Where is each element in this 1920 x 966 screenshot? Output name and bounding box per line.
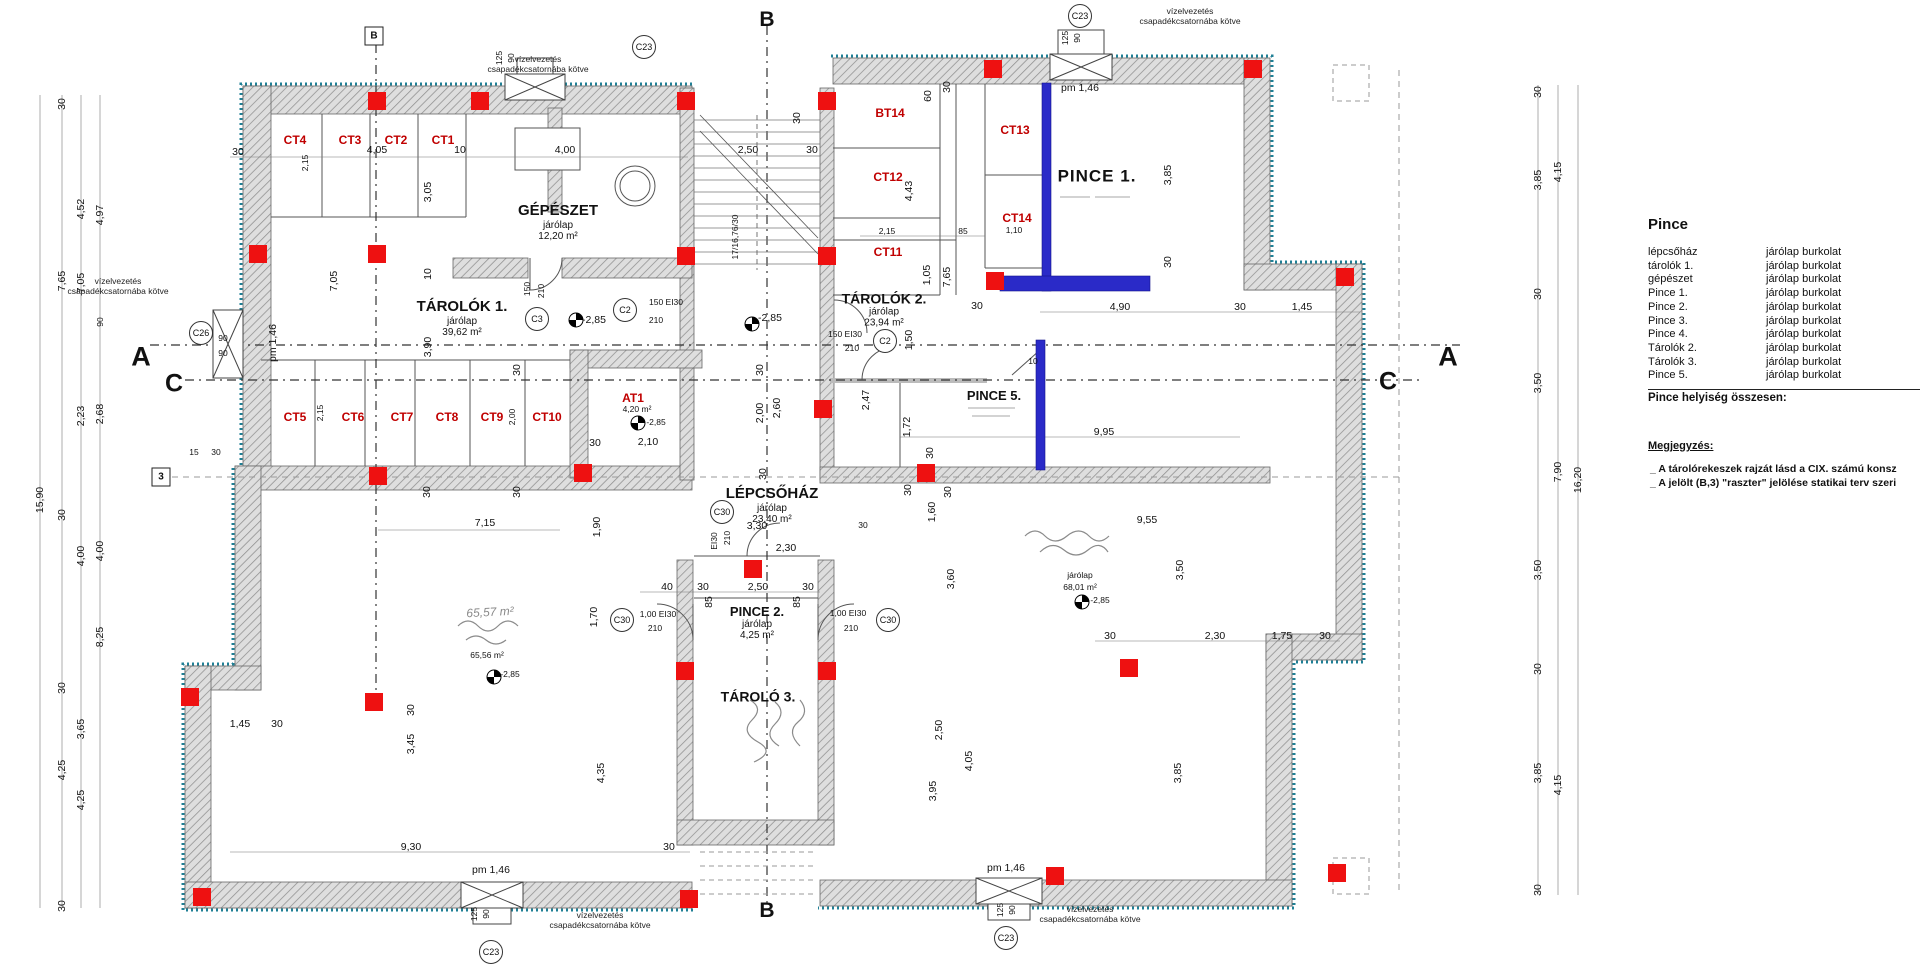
chain-dim-label: 3,85 <box>1533 170 1544 190</box>
dim-label: 10 <box>454 145 466 156</box>
dim-label: 4,90 <box>1110 302 1130 313</box>
legend-room-finish: járólap burkolat <box>1766 273 1841 287</box>
drain-note-line1: vízelvezetés <box>1039 904 1140 914</box>
area-label-right-room: 68,01 m² <box>1063 583 1097 592</box>
cell-label-ct5: CT5 <box>284 410 307 424</box>
room-finish: járólap <box>842 307 927 318</box>
legend-row: Pince 1.járólap burkolat <box>1648 287 1841 301</box>
legend-room-finish: járólap burkolat <box>1766 369 1841 383</box>
dim-label: 1,05 <box>922 265 933 285</box>
room-area: 39,62 m² <box>417 326 508 337</box>
chain-dim-label: 15,90 <box>35 487 46 513</box>
drain-note-bottom-right: vízelvezetés csapadékcsatornába kötve <box>1039 904 1140 924</box>
room-label-lepcsohaz: LÉPCSŐHÁZ járólap 23,40 m² <box>726 486 819 525</box>
legend-room-name: Tárolók 3. <box>1648 356 1766 370</box>
legend-note-1: _ A tárolórekeszek rajzát lásd a CIX. sz… <box>1650 463 1897 475</box>
dim-label: 2,30 <box>1205 631 1225 642</box>
legend-row: Pince 5.járólap burkolat <box>1648 369 1841 383</box>
cell-label-ct13: CT13 <box>1000 123 1029 137</box>
legend-row: Pince 3.járólap burkolat <box>1648 315 1841 329</box>
room-area: 23,40 m² <box>726 513 819 524</box>
section-marker-a-right: A <box>1438 342 1458 373</box>
room-area: 12,20 m² <box>518 230 598 241</box>
dim-label: 1,60 <box>927 502 938 522</box>
cell-label-ct12: CT12 <box>873 170 902 184</box>
door-size-label: 210 <box>648 624 662 633</box>
legend-room-name: gépészet <box>1648 273 1766 287</box>
legend-row: Pince 4.járólap burkolat <box>1648 328 1841 342</box>
legend-room-name: Pince 1. <box>1648 287 1766 301</box>
chain-dim-label: 7,90 <box>1553 462 1564 482</box>
dim-label: 7,15 <box>475 518 495 529</box>
stair-riser-label: 17/16,76/30 <box>731 215 740 260</box>
window-size-label: 90 <box>218 349 227 358</box>
window-size-label: 90 <box>1008 905 1017 914</box>
dim-label: 30 <box>1104 631 1116 642</box>
window-marker-c23-top: C23 <box>1068 4 1092 28</box>
room-label-gepeszet: GÉPÉSZET járólap 12,20 m² <box>518 203 598 242</box>
window-marker-c26: C26 <box>189 321 213 345</box>
door-marker-c2-left: C2 <box>613 298 637 322</box>
dim-label: 9,95 <box>1094 427 1114 438</box>
legend-row: gépészetjárólap burkolat <box>1648 273 1841 287</box>
room-name: LÉPCSŐHÁZ <box>726 486 819 503</box>
dim-label: 2,00 <box>755 403 766 423</box>
dim-label: 3,60 <box>946 569 957 589</box>
room-finish: járólap <box>518 219 598 230</box>
level-label: -2,85 <box>646 418 665 427</box>
dim-label: 30 <box>663 842 675 853</box>
window-marker-c23-top-left: C23 <box>632 35 656 59</box>
legend-room-finish: járólap burkolat <box>1766 328 1841 342</box>
chain-dim-label: 4,25 <box>57 760 68 780</box>
dim-label: 40 <box>661 582 673 593</box>
area-label-at1: 4,20 m² <box>623 405 652 414</box>
chain-dim-label: 2,23 <box>76 406 87 426</box>
room-finish: járólap <box>417 315 508 326</box>
dim-label: 10 <box>1028 357 1037 366</box>
sketch-area-left-room: 65,57 m² <box>466 604 514 620</box>
dim-label: 30 <box>211 448 220 457</box>
dim-label: 30 <box>697 582 709 593</box>
dim-label: 15 <box>189 448 198 457</box>
walls <box>185 58 1362 908</box>
drain-note-line2: csapadékcsatornába kötve <box>487 64 588 74</box>
dim-label: 30 <box>942 81 953 93</box>
highlighted-walls-blue <box>1000 83 1150 470</box>
dim-label: 4,05 <box>964 751 975 771</box>
dim-label: 30 <box>903 484 914 496</box>
dim-label: 3,85 <box>1173 763 1184 783</box>
door-arcs <box>530 258 1040 640</box>
door-size-label: 150 EI30 <box>649 298 683 307</box>
dim-label: 30 <box>792 112 803 124</box>
chain-dim-label: 3,50 <box>1533 560 1544 580</box>
axis-marker-b-box: B <box>365 27 384 46</box>
door-size-label: 210 <box>844 624 858 633</box>
dim-label: 1,45 <box>230 719 250 730</box>
chain-dim-label: 4,25 <box>76 790 87 810</box>
cell-label-ct8: CT8 <box>436 410 459 424</box>
dim-label: 3,90 <box>423 337 434 357</box>
dim-label: 3,45 <box>406 734 417 754</box>
door-size-label: 150 EI30 <box>828 330 862 339</box>
axis-marker-3-box: 3 <box>152 468 171 487</box>
dim-label: 85 <box>704 596 715 608</box>
door-size-label: 210 <box>845 344 859 353</box>
legend-room-finish: járólap burkolat <box>1766 315 1841 329</box>
dim-label: 2,50 <box>738 145 758 156</box>
dim-label: 1,70 <box>589 607 600 627</box>
dim-label: 30 <box>802 582 814 593</box>
chain-dim-label: 4,52 <box>76 199 87 219</box>
chain-dim-label: 90 <box>96 317 105 326</box>
section-marker-b-top: B <box>759 8 774 32</box>
legend-room-name: Pince 2. <box>1648 301 1766 315</box>
drain-note-line1: vízelvezetés <box>549 910 650 920</box>
dim-label: 9,55 <box>1137 515 1157 526</box>
window-size-label: 90 <box>218 334 227 343</box>
legend-room-list: lépcsőházjárólap burkolat tárolók 1.járó… <box>1648 246 1841 383</box>
room-name: TÁROLÓ 3. <box>721 689 796 704</box>
dim-label: 30 <box>422 486 433 498</box>
dim-label: 30 <box>858 521 867 530</box>
chain-dim-label: 30 <box>1533 288 1544 300</box>
door-marker-c3: C3 <box>525 307 549 331</box>
room-area: 4,25 m² <box>730 630 784 641</box>
chain-dim-label: 30 <box>57 682 68 694</box>
legend-row: Pince 2.járólap burkolat <box>1648 301 1841 315</box>
stairs <box>694 115 820 270</box>
room-name: TÁROLÓK 2. <box>842 291 927 306</box>
section-marker-a-left: A <box>131 342 151 373</box>
legend-room-name: Pince 3. <box>1648 315 1766 329</box>
section-marker-c-right: C <box>1379 368 1397 397</box>
level-label: -2,85 <box>758 313 782 324</box>
dim-label: 60 <box>923 90 934 102</box>
dim-label: 30 <box>971 301 983 312</box>
dim-label: 2,50 <box>748 582 768 593</box>
drain-note-left: vízelvezetés csapadékcsatornába kötve <box>67 276 168 296</box>
dim-label: 2,30 <box>776 543 796 554</box>
chain-dim-label: 4,15 <box>1553 162 1564 182</box>
dim-label: 30 <box>1163 256 1174 268</box>
dim-label: 1,72 <box>902 417 913 437</box>
drain-note-line1: vízelvezetés <box>1139 6 1240 16</box>
door-marker-c30-left: C30 <box>610 608 634 632</box>
legend-room-finish: járólap burkolat <box>1766 342 1841 356</box>
chain-dim-label: 8,25 <box>95 627 106 647</box>
cell-label-ct10: CT10 <box>532 410 561 424</box>
door-size-label: 1,00 EI30 <box>830 609 866 618</box>
room-area: 23,94 m² <box>842 318 927 329</box>
dim-label: 7,05 <box>329 271 340 291</box>
window-size-label: 90 <box>1073 33 1082 42</box>
window-size-label: 125 <box>1061 31 1070 45</box>
dim-label: 210 <box>537 284 546 298</box>
legend-row: tárolók 1.járólap burkolat <box>1648 260 1841 274</box>
chain-dim-label: 4,97 <box>95 205 106 225</box>
drain-note-line1: vízelvezetés <box>67 276 168 286</box>
parapet-label: pm 1,46 <box>987 863 1025 874</box>
cell-label-ct6: CT6 <box>342 410 365 424</box>
legend-total-label: Pince helyiség összesen: <box>1648 389 1920 404</box>
section-marker-b-bottom: B <box>759 899 774 923</box>
legend-note-2: _ A jelölt (B,3) "raszter" jelölése stat… <box>1650 477 1896 489</box>
drain-note-line2: csapadékcsatornába kötve <box>67 286 168 296</box>
chain-dim-label: 4,00 <box>76 546 87 566</box>
dim-label: 4,00 <box>555 145 575 156</box>
chain-dim-label: 30 <box>57 900 68 912</box>
window-size-label: 125 <box>996 903 1005 917</box>
chain-dim-label: 16,20 <box>1573 467 1584 493</box>
finish-label-right-room: járólap <box>1067 571 1093 580</box>
cell-label-ct14: CT14 <box>1002 211 1031 225</box>
dim-label: 2,50 <box>934 720 945 740</box>
dim-label: 3,50 <box>1175 560 1186 580</box>
legend-room-finish: járólap burkolat <box>1766 301 1841 315</box>
chain-dim-label: 4,15 <box>1553 775 1564 795</box>
room-label-pince5: PINCE 5. <box>967 389 1021 403</box>
dim-label: 7,65 <box>942 267 953 287</box>
level-label: -2,85 <box>500 670 519 679</box>
room-name: GÉPÉSZET <box>518 203 598 220</box>
door-marker-c2-right: C2 <box>873 329 897 353</box>
dim-label: 85 <box>958 227 967 236</box>
chain-dim-label: 30 <box>57 98 68 110</box>
room-name: TÁROLÓK 1. <box>417 299 508 316</box>
dim-label: 1,75 <box>1272 631 1292 642</box>
legend-room-finish: járólap burkolat <box>1766 356 1841 370</box>
dim-label: 9,30 <box>401 842 421 853</box>
dim-label: 3,30 <box>747 521 767 532</box>
dim-label: 3,95 <box>928 781 939 801</box>
legend-room-finish: járólap burkolat <box>1766 287 1841 301</box>
drain-note-bottom-left: vízelvezetés csapadékcsatornába kötve <box>549 910 650 930</box>
drain-note-line1: vízelvezetés <box>487 54 588 64</box>
parapet-label: pm 1,46 <box>268 324 279 362</box>
legend-row: lépcsőházjárólap burkolat <box>1648 246 1841 260</box>
dim-label: 30 <box>758 468 769 480</box>
chain-dim-label: 3,85 <box>1533 763 1544 783</box>
door-size-label: EI30 <box>710 532 719 550</box>
legend-room-name: Pince 5. <box>1648 369 1766 383</box>
drain-note-line2: csapadékcsatornába kötve <box>1139 16 1240 26</box>
legend-room-finish: járólap burkolat <box>1766 260 1841 274</box>
dim-label: 4,05 <box>367 145 387 156</box>
dim-label: 30 <box>406 704 417 716</box>
door-size-label: 210 <box>723 531 732 545</box>
cell-label-ct7: CT7 <box>391 410 414 424</box>
legend-title: Pince <box>1648 216 1688 233</box>
legend-row: Tárolók 3.járólap burkolat <box>1648 356 1841 370</box>
dim-label: 2,15 <box>879 227 896 236</box>
chain-dim-label: 30 <box>1533 663 1544 675</box>
legend-room-finish: járólap burkolat <box>1766 246 1841 260</box>
dim-label: 2,47 <box>861 390 872 410</box>
dim-label: 4,43 <box>904 181 915 201</box>
cell-label-bt14: BT14 <box>875 106 904 120</box>
window-size-label: 90 <box>482 909 491 918</box>
dim-label: 30 <box>1319 631 1331 642</box>
room-name: PINCE 2. <box>730 605 784 619</box>
dim-label: 2,00 <box>508 409 517 426</box>
chain-dim-label: 3,50 <box>1533 373 1544 393</box>
area-label-left-room: 65,56 m² <box>470 651 504 660</box>
chain-dim-label: 4,00 <box>95 541 106 561</box>
parapet-label: pm 1,46 <box>472 865 510 876</box>
room-label-tarolok2: TÁROLÓK 2. járólap 23,94 m² <box>842 291 927 328</box>
dim-label: 3,05 <box>423 182 434 202</box>
dim-label: 30 <box>232 147 244 158</box>
door-size-label: 210 <box>649 316 663 325</box>
cell-label-ct2: CT2 <box>385 133 408 147</box>
room-label-pince2: PINCE 2. járólap 4,25 m² <box>730 605 784 641</box>
cell-label-ct3: CT3 <box>339 133 362 147</box>
room-label-tarolo3: TÁROLÓ 3. <box>721 689 796 704</box>
door-marker-c30-right: C30 <box>876 608 900 632</box>
room-label-pince1: PINCE 1. <box>1058 168 1137 187</box>
dim-label: 30 <box>1234 302 1246 313</box>
legend-room-name: Tárolók 2. <box>1648 342 1766 356</box>
dim-label: 30 <box>806 145 818 156</box>
dim-label: 30 <box>512 486 523 498</box>
dim-label: 30 <box>943 486 954 498</box>
chain-dim-label: 30 <box>57 509 68 521</box>
level-label: -2,85 <box>1090 596 1109 605</box>
dim-label: 10 <box>423 268 434 280</box>
window-marker-c23-bottom-right: C23 <box>994 926 1018 950</box>
dim-label: 2,15 <box>316 405 325 422</box>
door-size-label: 1,00 EI30 <box>640 610 676 619</box>
dim-label: 2,60 <box>772 398 783 418</box>
chain-dim-label: 7,65 <box>57 271 68 291</box>
room-finish: járólap <box>726 502 819 513</box>
legend-room-name: lépcsőház <box>1648 246 1766 260</box>
door-marker-c30-stair: C30 <box>710 500 734 524</box>
dim-label: 2,10 <box>638 437 658 448</box>
dim-label: 85 <box>792 596 803 608</box>
room-label-tarolok1: TÁROLÓK 1. járólap 39,62 m² <box>417 299 508 338</box>
chain-dim-label: 2,68 <box>95 404 106 424</box>
chain-dim-label: 30 <box>1533 86 1544 98</box>
dim-label: 30 <box>925 447 936 459</box>
legend-row: Tárolók 2.járólap burkolat <box>1648 342 1841 356</box>
window-marker-c23-bottom-left: C23 <box>479 940 503 964</box>
dim-label: 4,35 <box>596 763 607 783</box>
room-finish: járólap <box>730 619 784 630</box>
dim-label: 1,90 <box>592 517 603 537</box>
drain-note-top-left: vízelvezetés csapadékcsatornába kötve <box>487 54 588 74</box>
parapet-label: pm 1,46 <box>1061 83 1099 94</box>
dim-label: 30 <box>589 438 601 449</box>
cell-label-ct4: CT4 <box>284 133 307 147</box>
cell-label-ct9: CT9 <box>481 410 504 424</box>
dim-label: 2,15 <box>301 155 310 172</box>
dim-label: 30 <box>512 364 523 376</box>
chain-dim-label: 3,65 <box>76 719 87 739</box>
drain-note-line2: csapadékcsatornába kötve <box>549 920 650 930</box>
dim-label: 1,45 <box>1292 302 1312 313</box>
cell-label-ct1: CT1 <box>432 133 455 147</box>
dim-label: 3,85 <box>1163 165 1174 185</box>
drain-note-line2: csapadékcsatornába kötve <box>1039 914 1140 924</box>
legend-room-name: tárolók 1. <box>1648 260 1766 274</box>
legend-room-name: Pince 4. <box>1648 328 1766 342</box>
dim-label: 30 <box>755 364 766 376</box>
drain-note-top-right: vízelvezetés csapadékcsatornába kötve <box>1139 6 1240 26</box>
dim-label: 1,50 <box>904 330 915 350</box>
room-name: PINCE 1. <box>1058 168 1137 187</box>
section-marker-c-left: C <box>165 370 183 399</box>
legend-notes-title: Megjegyzés: <box>1648 440 1713 452</box>
window-size-label: 125 <box>470 907 479 921</box>
dim-label: 150 <box>523 282 532 296</box>
level-label: -2,85 <box>582 315 606 326</box>
room-name: PINCE 5. <box>967 389 1021 403</box>
floorplan-page: GÉPÉSZET járólap 12,20 m² TÁROLÓK 1. jár… <box>0 0 1920 966</box>
dim-label: 30 <box>271 719 283 730</box>
cell-label-ct11: CT11 <box>874 245 903 259</box>
dim-label: 1,10 <box>1006 226 1023 235</box>
chain-dim-label: 30 <box>1533 884 1544 896</box>
